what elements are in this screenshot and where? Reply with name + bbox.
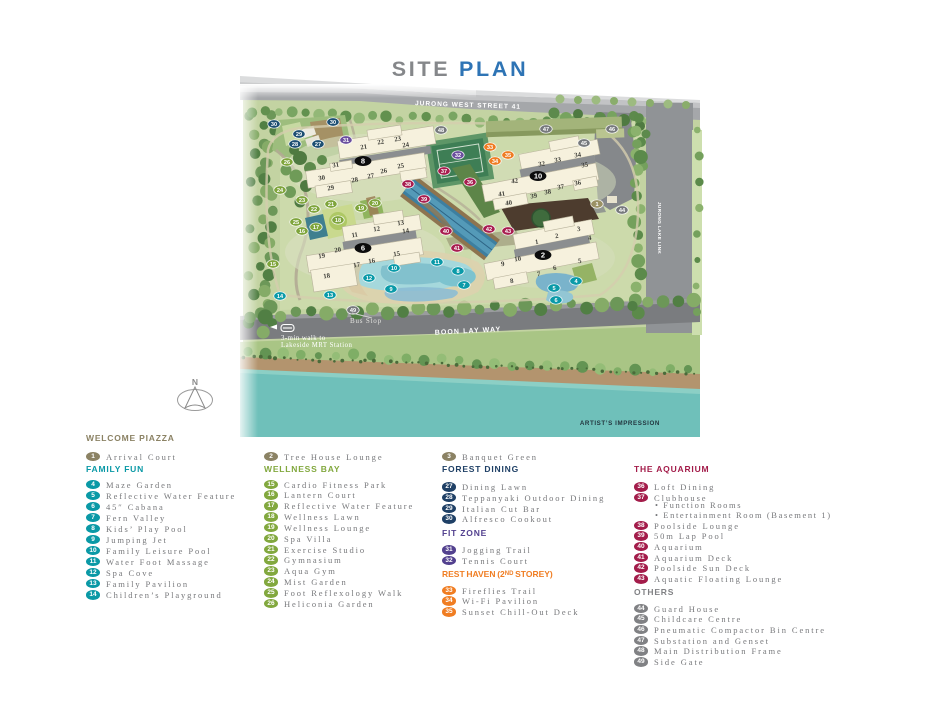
svg-text:Lakeside MRT Station: Lakeside MRT Station — [281, 342, 352, 349]
svg-text:41: 41 — [454, 246, 460, 252]
svg-text:2: 2 — [541, 251, 545, 260]
svg-text:21: 21 — [328, 202, 334, 208]
svg-text:30: 30 — [330, 120, 336, 126]
svg-text:5: 5 — [552, 286, 555, 292]
svg-text:42: 42 — [486, 227, 492, 233]
svg-text:25: 25 — [293, 220, 299, 226]
svg-text:15: 15 — [270, 262, 276, 268]
svg-text:43: 43 — [505, 229, 511, 235]
svg-text:48: 48 — [438, 128, 444, 134]
svg-text:8: 8 — [361, 157, 365, 166]
svg-text:37: 37 — [441, 169, 447, 175]
svg-text:45: 45 — [581, 141, 587, 147]
svg-text:28: 28 — [292, 142, 298, 148]
svg-text:47: 47 — [543, 127, 549, 133]
svg-text:31: 31 — [343, 138, 349, 144]
svg-text:22: 22 — [311, 207, 317, 213]
svg-text:11: 11 — [434, 260, 440, 266]
svg-text:12: 12 — [366, 276, 372, 282]
svg-text:40: 40 — [443, 229, 449, 235]
svg-text:6: 6 — [554, 298, 557, 304]
svg-text:26: 26 — [284, 160, 290, 166]
svg-text:1: 1 — [595, 202, 598, 208]
svg-text:19: 19 — [358, 206, 364, 212]
svg-text:20: 20 — [372, 201, 378, 207]
svg-text:17: 17 — [313, 225, 319, 231]
svg-text:36: 36 — [467, 180, 473, 186]
svg-text:30: 30 — [271, 122, 277, 128]
svg-text:Bus Stop: Bus Stop — [350, 317, 382, 325]
svg-text:14: 14 — [277, 294, 284, 300]
svg-text:10: 10 — [534, 172, 542, 181]
svg-text:6: 6 — [361, 244, 365, 253]
svg-text:10: 10 — [391, 266, 397, 272]
svg-text:24: 24 — [277, 188, 284, 194]
svg-text:44: 44 — [619, 208, 626, 214]
svg-text:7: 7 — [462, 283, 465, 289]
svg-text:35: 35 — [505, 153, 511, 159]
svg-text:3-min walk to: 3-min walk to — [281, 335, 326, 342]
svg-text:16: 16 — [299, 229, 305, 235]
svg-text:33: 33 — [487, 145, 493, 151]
svg-text:29: 29 — [296, 132, 302, 138]
svg-text:27: 27 — [315, 142, 321, 148]
svg-text:N: N — [192, 377, 198, 387]
svg-text:9: 9 — [389, 287, 392, 293]
svg-text:38: 38 — [405, 182, 411, 188]
svg-text:JURONG LAKE LINK: JURONG LAKE LINK — [656, 202, 662, 254]
svg-text:34: 34 — [492, 159, 499, 165]
svg-text:13: 13 — [327, 293, 333, 299]
svg-text:18: 18 — [335, 218, 341, 224]
svg-text:32: 32 — [455, 153, 461, 159]
svg-text:46: 46 — [609, 127, 615, 133]
svg-text:ARTIST’S IMPRESSION: ARTIST’S IMPRESSION — [580, 420, 660, 427]
svg-text:8: 8 — [456, 269, 459, 275]
svg-text:23: 23 — [299, 198, 305, 204]
svg-text:39: 39 — [421, 197, 427, 203]
